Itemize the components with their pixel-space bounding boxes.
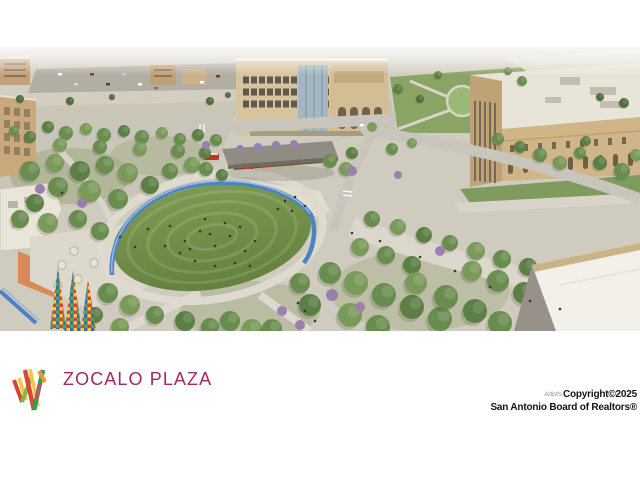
copyright-watermark: Artist'sCopyright©2025 San Antonio Board…	[490, 389, 637, 414]
copyright-line2: San Antonio Board of Realtors®	[490, 402, 637, 415]
zocalo-logo-icon	[7, 364, 47, 416]
brand-bar: ZOCALO PLAZA	[7, 364, 307, 418]
listing-page: ZOCALO PLAZA Artist'sCopyright©2025 San …	[0, 0, 640, 480]
copyright-year: Copyright©2025	[563, 389, 637, 400]
listing-photo	[0, 41, 640, 331]
sky-haze	[0, 41, 640, 75]
artist-note: Artist's	[544, 391, 562, 398]
copyright-line1: Artist'sCopyright©2025	[490, 389, 637, 402]
brand-wordmark: ZOCALO PLAZA	[63, 369, 212, 389]
